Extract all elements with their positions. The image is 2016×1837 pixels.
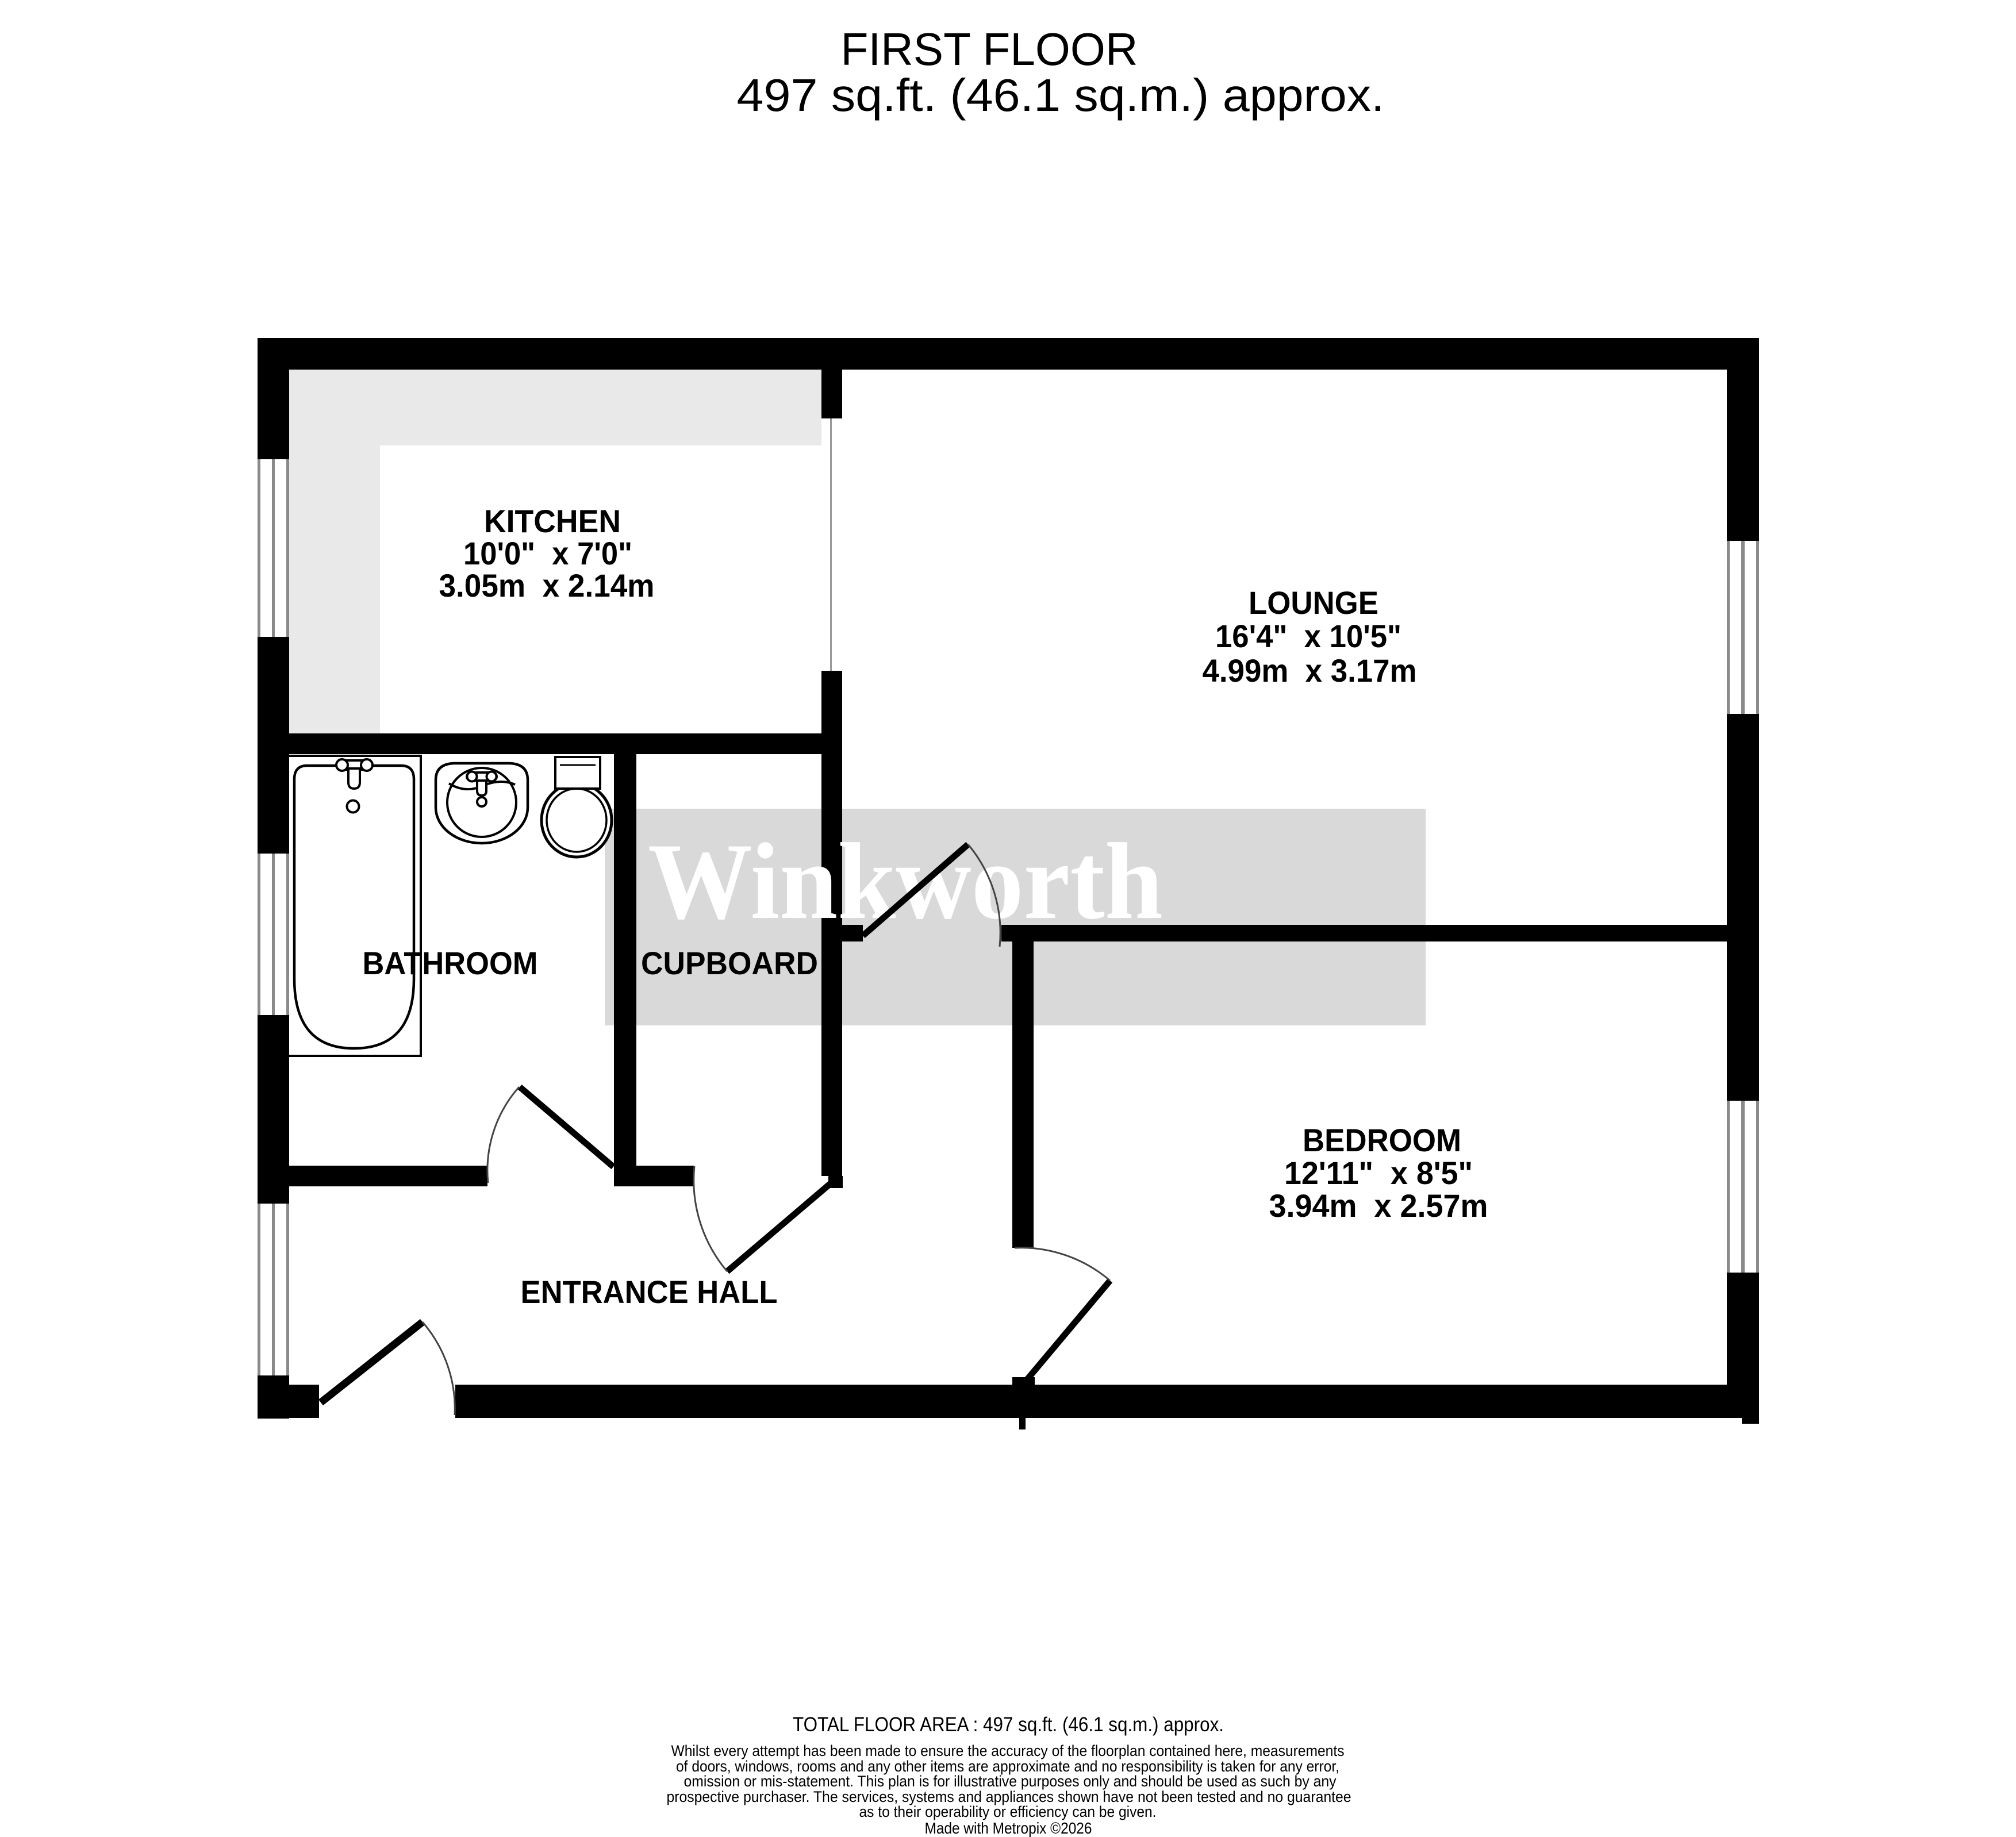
svg-text:KITCHEN: KITCHEN xyxy=(484,503,621,539)
svg-text:CUPBOARD: CUPBOARD xyxy=(641,945,818,981)
svg-text:as to their operability or eff: as to their operability or efficiency ca… xyxy=(859,1803,1157,1820)
svg-text:ENTRANCE HALL: ENTRANCE HALL xyxy=(521,1274,778,1310)
svg-text:Winkworth: Winkworth xyxy=(648,821,1163,942)
svg-text:12'11" x 8'5": 12'11" x 8'5" xyxy=(1284,1155,1473,1191)
svg-text:BATHROOM: BATHROOM xyxy=(363,945,538,981)
svg-text:3.05m x 2.14m: 3.05m x 2.14m xyxy=(439,567,655,604)
svg-text:omission or mis-statement. Thi: omission or mis-statement. This plan is … xyxy=(684,1773,1337,1790)
svg-text:Whilst every attempt has been: Whilst every attempt has been made to en… xyxy=(671,1742,1345,1759)
svg-text:4.99m x 3.17m: 4.99m x 3.17m xyxy=(1203,652,1417,689)
svg-text:BEDROOM: BEDROOM xyxy=(1303,1122,1461,1158)
svg-text:3.94m x 2.57m: 3.94m x 2.57m xyxy=(1269,1187,1488,1224)
svg-text:FIRST FLOOR: FIRST FLOOR xyxy=(841,24,1138,75)
svg-text:10'0" x 7'0": 10'0" x 7'0" xyxy=(463,535,632,571)
svg-text:497 sq.ft. (46.1 sq.m.) approx: 497 sq.ft. (46.1 sq.m.) approx. xyxy=(737,70,1385,121)
svg-text:16'4" x 10'5": 16'4" x 10'5" xyxy=(1215,618,1401,654)
svg-text:TOTAL FLOOR AREA : 497 sq.ft.: TOTAL FLOOR AREA : 497 sq.ft. (46.1 sq.m… xyxy=(793,1713,1224,1736)
svg-text:LOUNGE: LOUNGE xyxy=(1249,585,1378,621)
svg-text:Made with Metropix ©2026: Made with Metropix ©2026 xyxy=(925,1819,1092,1837)
